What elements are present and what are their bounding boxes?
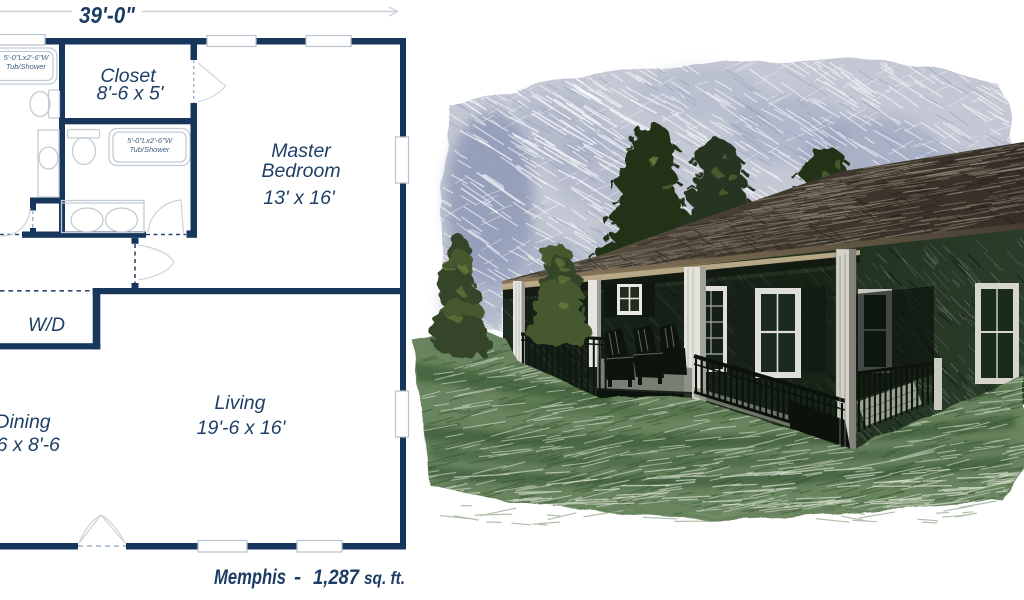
svg-text:Living: Living bbox=[215, 392, 266, 414]
svg-text:8'-6 x 5': 8'-6 x 5' bbox=[96, 83, 164, 105]
svg-text:19'-6 x 16': 19'-6 x 16' bbox=[197, 417, 287, 439]
svg-text:W/D: W/D bbox=[28, 315, 65, 336]
svg-text:Master: Master bbox=[271, 140, 332, 162]
svg-text:Bedroom: Bedroom bbox=[261, 160, 340, 182]
svg-text:39'-0": 39'-0" bbox=[79, 2, 136, 28]
svg-text:13' x 16': 13' x 16' bbox=[263, 187, 336, 209]
svg-text:sq. ft.: sq. ft. bbox=[364, 568, 405, 588]
svg-text:-: - bbox=[294, 565, 301, 589]
svg-text:Tub/Shower: Tub/Shower bbox=[6, 62, 46, 71]
svg-text:Memphis: Memphis bbox=[214, 565, 286, 589]
svg-text:5'-0"Lx2'-6"W: 5'-0"Lx2'-6"W bbox=[4, 53, 50, 62]
svg-text:Dining: Dining bbox=[0, 411, 51, 433]
svg-text:1,287: 1,287 bbox=[313, 565, 360, 589]
svg-text:Tub/Shower: Tub/Shower bbox=[130, 145, 170, 154]
svg-text:5'-0"Lx2'-6"W: 5'-0"Lx2'-6"W bbox=[127, 136, 173, 145]
svg-text:11'-6 x 8'-6: 11'-6 x 8'-6 bbox=[0, 434, 60, 456]
